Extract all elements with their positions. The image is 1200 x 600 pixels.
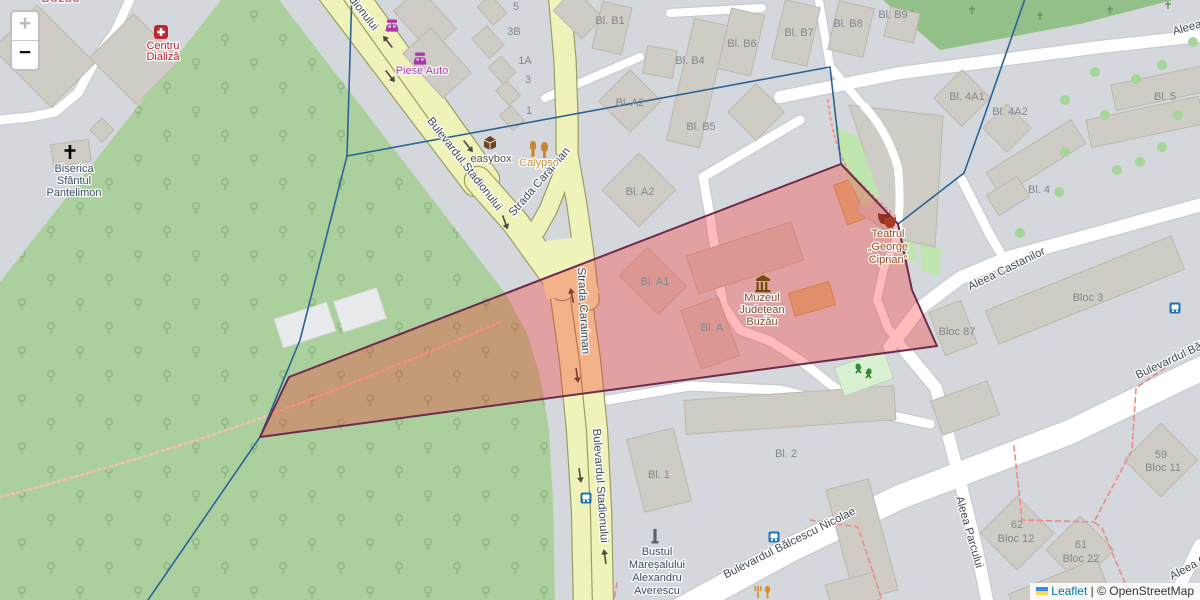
svg-text:Bl. B9: Bl. B9: [878, 9, 907, 21]
svg-text:Bl. B5: Bl. B5: [686, 121, 715, 133]
svg-text:Bloc 87: Bloc 87: [939, 326, 976, 338]
svg-text:easybox: easybox: [471, 153, 512, 165]
svg-text:Teatrul: Teatrul: [871, 228, 904, 240]
svg-text:Bl. B6: Bl. B6: [727, 38, 756, 50]
svg-text:Bl. 4: Bl. 4: [1028, 184, 1050, 196]
svg-text:Bl. 2: Bl. 2: [775, 448, 797, 460]
svg-text:Ciprian”: Ciprian”: [869, 254, 908, 266]
svg-text:Averescu: Averescu: [634, 585, 680, 597]
svg-text:Bl. B4: Bl. B4: [675, 55, 704, 67]
svg-text:Bustul: Bustul: [642, 546, 673, 558]
svg-text:Bl. B1: Bl. B1: [595, 15, 624, 27]
svg-text:Bl. 5: Bl. 5: [1154, 91, 1176, 103]
svg-text:Bl. A2: Bl. A2: [616, 97, 645, 109]
svg-text:Bloc 11: Bloc 11: [1145, 462, 1181, 474]
svg-text:Bl. 4A1: Bl. 4A1: [949, 91, 984, 103]
svg-text:Mareșalului: Mareșalului: [629, 559, 685, 571]
svg-text:Bl. 4A2: Bl. 4A2: [992, 106, 1027, 118]
svg-text:Județean: Județean: [739, 304, 784, 316]
svg-text:Bl. B7: Bl. B7: [784, 27, 813, 39]
svg-text:5: 5: [513, 1, 519, 13]
svg-text:Bl. B8: Bl. B8: [833, 18, 862, 30]
svg-text:3B: 3B: [507, 26, 520, 38]
svg-text:Bloc 22: Bloc 22: [1063, 553, 1100, 565]
svg-text:Pantelimon: Pantelimon: [46, 187, 101, 199]
svg-text:3: 3: [525, 74, 531, 86]
svg-text:Bl. A2: Bl. A2: [626, 186, 655, 198]
svg-text:59: 59: [1155, 449, 1167, 461]
svg-text:Muzeul: Muzeul: [744, 292, 779, 304]
svg-text:Bl. 1: Bl. 1: [648, 469, 670, 481]
svg-text:Biserica: Biserica: [54, 163, 94, 175]
svg-text:Bloc 12: Bloc 12: [998, 533, 1035, 545]
svg-text:Dializă: Dializă: [146, 51, 180, 63]
svg-text:Buzău: Buzău: [42, 0, 81, 5]
svg-text:„George: „George: [868, 241, 908, 253]
svg-text:Bloc 3: Bloc 3: [1073, 292, 1104, 304]
svg-text:Bl. A1: Bl. A1: [641, 276, 670, 288]
svg-text:Sfântul: Sfântul: [57, 175, 91, 187]
svg-text:Calypso: Calypso: [519, 157, 559, 169]
svg-text:61: 61: [1075, 539, 1087, 551]
svg-text:1: 1: [526, 105, 532, 117]
svg-text:Piese Auto: Piese Auto: [396, 65, 449, 77]
svg-text:Alexandru: Alexandru: [632, 572, 682, 584]
svg-text:Buzău: Buzău: [746, 316, 777, 328]
svg-text:Bl. A: Bl. A: [701, 322, 724, 334]
svg-text:1A: 1A: [518, 55, 532, 67]
svg-text:62: 62: [1011, 519, 1023, 531]
